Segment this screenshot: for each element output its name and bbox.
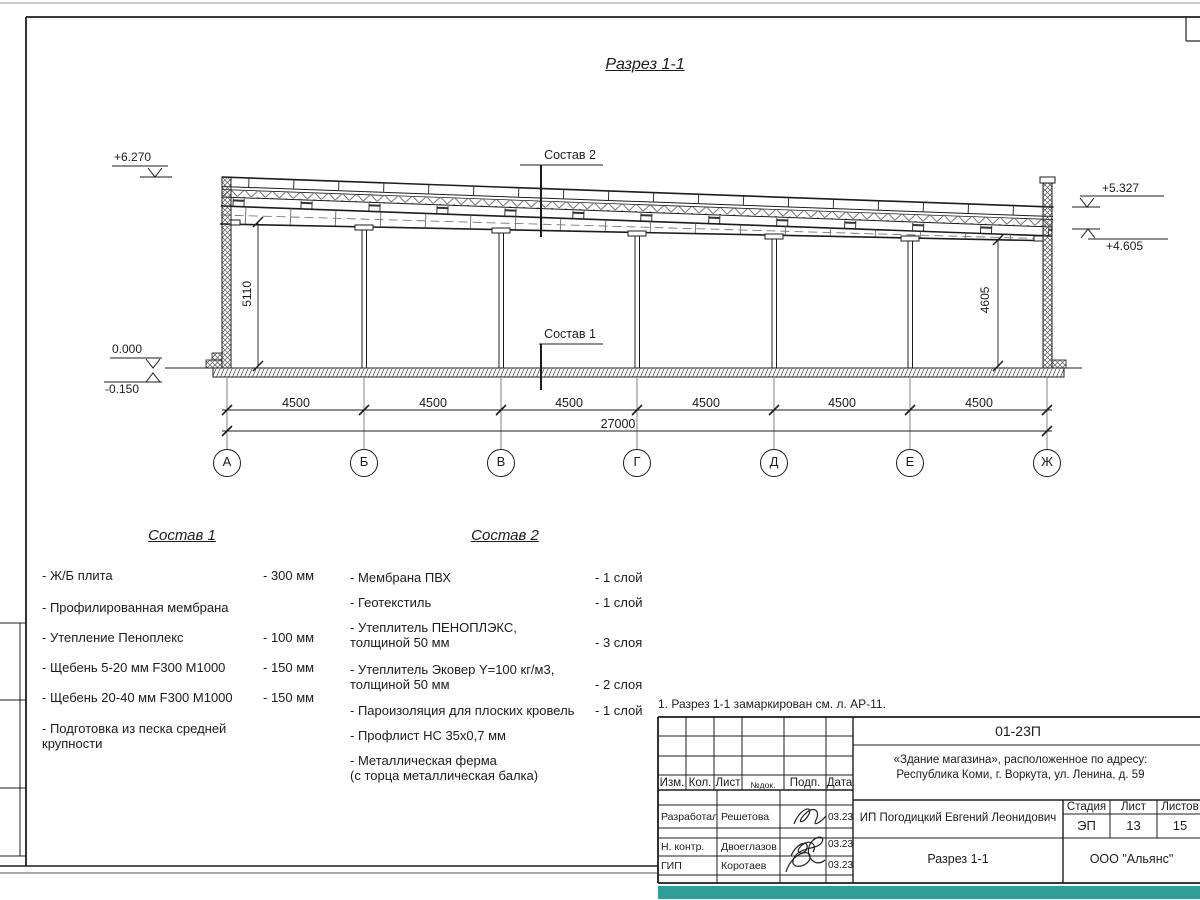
total-dim: 27000 bbox=[578, 417, 658, 431]
list-item: - Пароизоляция для плоских кровель- 1 сл… bbox=[350, 703, 680, 718]
axis-bubble-label: А bbox=[212, 455, 242, 470]
list-item: - Утеплитель Эковер Y=100 кг/м3, толщино… bbox=[350, 662, 680, 692]
section-floor bbox=[165, 353, 1082, 377]
list-item: - Геотекстиль- 1 слой bbox=[350, 595, 680, 610]
bay-dim: 4500 bbox=[266, 396, 326, 410]
elevation-zero: 0.000 bbox=[112, 343, 142, 357]
sostav2-title: Состав 2 bbox=[350, 527, 660, 544]
signature-scribbles bbox=[786, 809, 826, 872]
bay-dim: 4500 bbox=[949, 396, 1009, 410]
axis-bubble-label: Г bbox=[622, 455, 652, 470]
elevation-right-truss: +4.605 bbox=[1106, 240, 1143, 254]
sheet-note: 1. Разрез 1-1 замаркирован см. л. АР-11. bbox=[658, 698, 886, 712]
row-date: 03.23 bbox=[828, 860, 853, 871]
row-name: Двоеглазов bbox=[721, 841, 777, 853]
sheet-number: 13 bbox=[1110, 819, 1157, 834]
list-item: - Утепление Пеноплекс- 100 мм bbox=[42, 630, 342, 645]
vertical-dim-right: 4605 bbox=[979, 278, 993, 322]
row-role: Н. контр. bbox=[661, 841, 704, 853]
left-margin-cells bbox=[0, 623, 26, 856]
row-date: 03.23 bbox=[828, 839, 853, 850]
project-name-line2: Республика Коми, г. Воркута, ул. Ленина,… bbox=[853, 769, 1188, 782]
list-item: - Подготовка из песка средней крупности bbox=[42, 721, 342, 751]
drawing-title: Разрез 1-1 bbox=[520, 56, 770, 74]
header-izm: Изм. bbox=[658, 777, 686, 789]
axis-bubble-label: Е bbox=[895, 455, 925, 470]
sheets-label: Листов bbox=[1157, 801, 1200, 813]
bay-dim: 4500 bbox=[676, 396, 736, 410]
sheet-label: Лист bbox=[1110, 801, 1157, 813]
axis-bubble-label: Ж bbox=[1032, 455, 1062, 470]
row-date: 03.23 bbox=[828, 812, 853, 823]
list-item: - Профилированная мембрана bbox=[42, 600, 342, 615]
drawing-sheet: { "colors": { "stamp_strip": "#2f9e97", … bbox=[0, 0, 1200, 900]
sostav1-leader-label: Состав 1 bbox=[510, 327, 630, 341]
row-role: ГИП bbox=[661, 860, 682, 872]
list-item: - Утеплитель ПЕНОПЛЭКС, толщиной 50 мм- … bbox=[350, 620, 680, 650]
header-list: Лист bbox=[714, 777, 742, 789]
bay-dim: 4500 bbox=[812, 396, 872, 410]
list-item: - Ж/Б плита- 300 мм bbox=[42, 568, 342, 583]
list-item: - Профлист НС 35х0,7 мм bbox=[350, 728, 680, 743]
header-data: Дата bbox=[826, 777, 853, 789]
bay-dim: 4500 bbox=[403, 396, 463, 410]
row-name: Решетова bbox=[721, 811, 769, 823]
stamp-drawing-name: Разрез 1-1 bbox=[853, 852, 1063, 866]
section-columns bbox=[355, 225, 919, 368]
stage-value: ЭП bbox=[1063, 819, 1110, 834]
vertical-dim-left: 5110 bbox=[241, 272, 255, 316]
list-item: - Щебень 20-40 мм F300 М1000- 150 мм bbox=[42, 690, 342, 705]
company-name: ООО "Альянс" bbox=[1063, 852, 1200, 866]
header-ndok: №док. bbox=[742, 780, 784, 790]
row-name: Коротаев bbox=[721, 860, 766, 872]
list-item: - Щебень 5-20 мм F300 М1000- 150 мм bbox=[42, 660, 342, 675]
list-item: - Мембрана ПВХ- 1 слой bbox=[350, 570, 680, 585]
row-role: Разработал bbox=[661, 811, 718, 823]
sostav1-title: Состав 1 bbox=[42, 527, 322, 544]
axis-bubble-label: Д bbox=[759, 455, 789, 470]
axis-bubble-label: В bbox=[486, 455, 516, 470]
header-kol: Кол. bbox=[686, 777, 714, 789]
stage-label: Стадия bbox=[1063, 801, 1110, 813]
header-podp: Подп. bbox=[784, 777, 826, 789]
elevation-left-top: +6.270 bbox=[114, 151, 151, 165]
stamp-strip bbox=[658, 886, 1200, 899]
sostav2-leader-label: Состав 2 bbox=[510, 148, 630, 162]
bay-dim: 4500 bbox=[539, 396, 599, 410]
elevation-below-zero: -0.150 bbox=[105, 383, 139, 397]
project-name-line1: «Здание магазина», расположенное по адре… bbox=[853, 754, 1188, 767]
client-name: ИП Погодицкий Евгений Леонидович bbox=[853, 812, 1063, 825]
doc-number: 01-23П bbox=[853, 723, 1183, 739]
elevation-right-roof: +5.327 bbox=[1102, 182, 1139, 196]
list-item: - Металлическая ферма (с торца металличе… bbox=[350, 753, 680, 783]
sheets-total: 15 bbox=[1157, 819, 1200, 834]
axis-bubble-label: Б bbox=[349, 455, 379, 470]
